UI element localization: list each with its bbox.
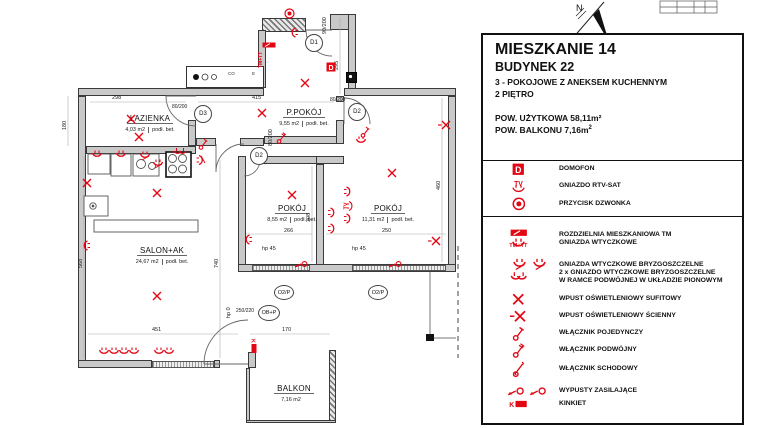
dimension: 460 xyxy=(436,181,442,190)
entry-panel xyxy=(346,72,357,83)
power-outlet-icon xyxy=(388,260,403,269)
ceiling-light-outlet-icon xyxy=(489,293,559,306)
rtv-sat-socket-icon: TV xyxy=(489,179,559,194)
socket-double-icon xyxy=(173,147,187,157)
floor-line: 2 PIĘTRO xyxy=(495,89,534,99)
ceiling-light-icon xyxy=(387,168,397,178)
legend-row: PRZYCISK DZWONKA xyxy=(489,197,737,211)
socket-icon xyxy=(328,207,337,219)
legend-row: D DOMOFON xyxy=(489,163,737,176)
shaft-label: E xyxy=(252,71,255,76)
ceiling-light-icon xyxy=(287,190,297,200)
wall xyxy=(240,138,264,146)
room-label-salon: SALON+AK 24,67 m2podł. bet. xyxy=(120,240,204,265)
hatched-wall xyxy=(262,18,306,32)
socket-icon xyxy=(344,213,353,225)
power-outlet-icon xyxy=(294,260,309,269)
ceiling-light-icon xyxy=(300,78,310,88)
socket-icon xyxy=(244,234,253,246)
legend-row: WPUST OŚWIETLENIOWY SUFITOWY xyxy=(489,293,737,306)
window-label-obp: OB+P xyxy=(258,305,280,321)
balcony-wall xyxy=(246,368,250,422)
legend-row: 2 x GNIAZDO WTYCZKOWE BRYZGOSZCZELNE W R… xyxy=(489,269,737,286)
wall xyxy=(214,360,220,368)
wall xyxy=(238,156,246,272)
ceiling-light-icon xyxy=(82,178,92,188)
dimension: 180 xyxy=(62,121,68,130)
wall-lamp-icon: K xyxy=(489,399,559,409)
rtv-icon: TV xyxy=(342,200,354,212)
domofon-icon: D xyxy=(326,62,336,72)
socket-splash-icon xyxy=(139,150,152,161)
socket-splash-icon xyxy=(195,153,206,166)
installation-shaft xyxy=(186,66,264,88)
tm-board-icon xyxy=(262,42,276,49)
wall-light-icon xyxy=(438,120,451,130)
dimension: 266 xyxy=(284,228,293,234)
domofon-icon: D xyxy=(489,163,559,176)
dimension: 415 xyxy=(252,95,261,101)
window-sill-height: hp 0 xyxy=(226,307,232,318)
wall xyxy=(78,88,264,96)
dimension: 740 xyxy=(214,259,220,268)
wall-light-icon xyxy=(428,236,441,246)
switch-single-icon xyxy=(198,138,208,150)
socket-splash-icon xyxy=(152,158,165,169)
room-label-pokoj-2: POKÓJ 11,31 m2podł. bet. xyxy=(352,198,424,223)
building-subtitle: BUDYNEK 22 xyxy=(495,60,574,74)
doorbell-icon xyxy=(284,8,295,19)
socket-icon xyxy=(91,150,103,159)
legend-row: WŁĄCZNIK PODWÓJNY xyxy=(489,343,737,358)
wall-light-outlet-icon xyxy=(489,310,559,323)
window-label-o2p: O2/P xyxy=(274,285,294,300)
socket-icon xyxy=(328,223,337,235)
shaft-label: CO xyxy=(228,71,235,76)
apartment-type: 3 - POKOJOWE Z ANEKSEM KUCHENNYM xyxy=(495,77,667,87)
ceiling-light-icon xyxy=(126,114,136,124)
socket-icon xyxy=(489,238,559,249)
dimension: 308 xyxy=(306,213,312,222)
balcony-wall xyxy=(329,350,336,422)
door-label-d2b: D2 xyxy=(250,147,268,165)
legend-row: WŁĄCZNIK SCHODOWY xyxy=(489,361,737,377)
divider xyxy=(483,216,742,217)
door-label-d2: D2 xyxy=(348,103,366,121)
wall xyxy=(316,156,344,164)
window-sill-height: hp 45 xyxy=(262,246,276,252)
socket-icon xyxy=(344,186,353,198)
room-label-ppokoj: P.POKÓJ 9,55 m2podł. bet. xyxy=(268,102,340,127)
door-size: 80/200 xyxy=(330,97,345,103)
ceiling-light-icon xyxy=(134,132,144,142)
double-switch-icon xyxy=(489,343,559,358)
door-label-d3: D3 xyxy=(194,105,212,123)
balcony-area: POW. BALKONU 7,16m2 xyxy=(495,125,592,135)
wall xyxy=(344,88,456,96)
wall xyxy=(78,360,152,368)
dimension: 451 xyxy=(152,327,161,333)
door-size: 80/200 xyxy=(172,104,187,110)
svg-text:K: K xyxy=(250,339,256,343)
balcony-door-size: 250/220 xyxy=(236,308,254,314)
ceiling-light-icon xyxy=(257,108,267,118)
socket-icon xyxy=(163,347,175,356)
room-label-balkon: BALKON 7,16 m2 xyxy=(258,378,330,403)
socket-icon xyxy=(355,136,367,145)
ceiling-light-icon xyxy=(152,291,162,301)
floor-plan-sheet: CO E xyxy=(0,0,760,428)
socket-icon xyxy=(82,240,91,252)
wall xyxy=(348,14,356,96)
usable-area: POW. UŻYTKOWA 58,11m² xyxy=(495,113,601,123)
wall xyxy=(78,96,86,368)
doorbell-button-icon xyxy=(489,197,559,211)
socket-icon xyxy=(128,347,140,356)
room-label-lazienka: ŁAZIENKA 4,03 m2podł. bet. xyxy=(108,108,192,133)
dimension: 568 xyxy=(78,259,84,268)
window-sill-height: hp 45 xyxy=(352,246,366,252)
divider xyxy=(483,160,742,161)
svg-text:K: K xyxy=(510,402,515,409)
socket-icon xyxy=(290,27,299,39)
apartment-title: MIESZKANIE 14 xyxy=(495,41,616,59)
apartment-plan: CO E xyxy=(0,0,480,428)
window-label-o2p: O2/P xyxy=(368,285,388,300)
legend-row: K KINKIET xyxy=(489,399,737,409)
door-label-d1: D1 xyxy=(305,34,323,52)
door-size: 80/200 xyxy=(268,129,274,146)
distribution-board-label: TM+TT xyxy=(258,52,264,68)
room-label-pokoj-1: POKÓJ 8,55 m2podł. bet. xyxy=(260,198,324,223)
legend-row: GNIAZDA WTYCZKOWE xyxy=(489,238,737,249)
svg-text:D: D xyxy=(328,65,333,72)
ceiling-light-icon xyxy=(152,188,162,198)
dimension: 170 xyxy=(282,327,291,333)
socket-icon xyxy=(115,150,127,159)
wall xyxy=(248,352,256,368)
door-size: 90/200 xyxy=(322,17,328,34)
window xyxy=(152,361,214,368)
legend-row: WŁĄCZNIK POJEDYNCZY xyxy=(489,326,737,341)
kinkiet-icon: K xyxy=(250,338,258,354)
svg-text:D: D xyxy=(515,165,521,175)
single-switch-icon xyxy=(489,326,559,341)
legend-row: TV GNIAZDO RTV-SAT xyxy=(489,179,737,194)
switch-double-icon xyxy=(276,132,286,144)
stair-switch-icon xyxy=(489,361,559,377)
north-label: N xyxy=(576,3,583,13)
dimension: 250 xyxy=(382,228,391,234)
legend-row: WPUST OŚWIETLENIOWY ŚCIENNY xyxy=(489,310,737,323)
balcony-wall xyxy=(246,420,336,423)
dimension: 298 xyxy=(112,95,121,101)
info-panel: MIESZKANIE 14 BUDYNEK 22 3 - POKOJOWE Z … xyxy=(481,33,744,425)
double-vertical-splash-socket-icon xyxy=(489,271,559,284)
